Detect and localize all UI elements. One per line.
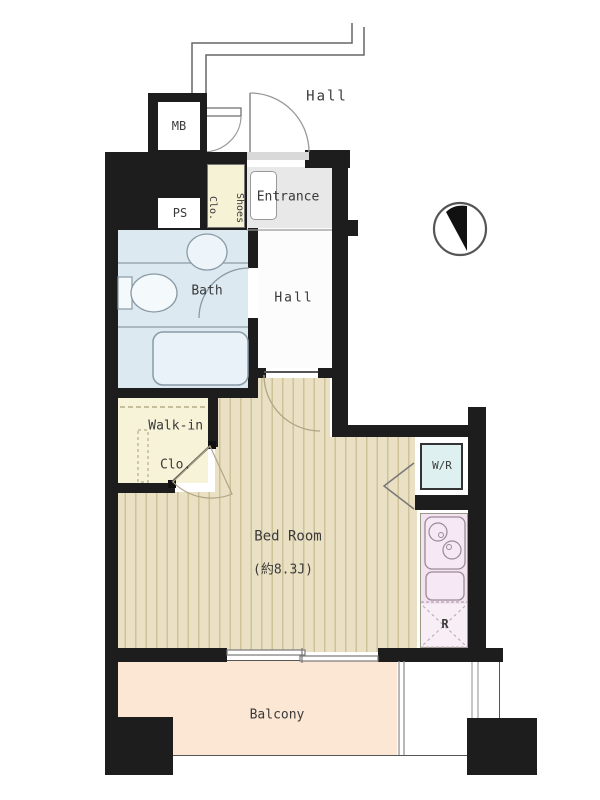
bedroom-label: Bed Room bbox=[254, 527, 321, 548]
refrigerator-label: R bbox=[441, 615, 448, 633]
wall-bath-right-a bbox=[248, 228, 258, 268]
shoes-closet-label: Shoes Clo. bbox=[192, 169, 260, 223]
wic-door-jamb-top bbox=[208, 441, 216, 449]
pipe-space-label: PS bbox=[173, 204, 187, 222]
hall-inner-label: Hall bbox=[274, 288, 313, 308]
washer-room-label: W/R bbox=[432, 458, 452, 475]
wall-hall-bedroom-b bbox=[318, 368, 332, 378]
bedroom-size-label: (約8.3J) bbox=[253, 560, 313, 580]
wall-right-pillar bbox=[346, 220, 358, 236]
wall-left-bottom-block bbox=[105, 717, 173, 775]
wall-hall-bedroom-a bbox=[248, 368, 266, 378]
wall-bottom-right bbox=[378, 648, 503, 662]
entrance-door-arc bbox=[250, 93, 309, 152]
wall-right-upper bbox=[332, 150, 348, 437]
wall-wic-right bbox=[208, 398, 218, 447]
balcony-label: Balcony bbox=[250, 705, 305, 725]
wall-step bbox=[332, 425, 486, 437]
wall-below-wr bbox=[415, 495, 468, 510]
compass-icon bbox=[434, 203, 486, 255]
entrance-label: Entrance bbox=[257, 187, 320, 207]
bath-label: Bath bbox=[191, 281, 222, 301]
meter-box-label: MB bbox=[172, 117, 186, 135]
entrance-threshold bbox=[247, 152, 309, 160]
wall-right-lower bbox=[468, 407, 486, 662]
wall-bottom-left bbox=[105, 648, 227, 662]
mb-door-arc bbox=[203, 116, 241, 152]
mb-door-leaf bbox=[203, 108, 241, 116]
wall-bath-right-b bbox=[248, 318, 258, 390]
walk-in-closet-label: Walk-in Clo. bbox=[117, 396, 203, 494]
floor-plan: Hall MB PS Shoes Clo. Entrance Bath Hall… bbox=[0, 0, 600, 800]
wall-bottomright-block bbox=[467, 718, 537, 775]
hall-corridor-label: Hall bbox=[306, 87, 348, 108]
bath-floor bbox=[118, 230, 248, 388]
